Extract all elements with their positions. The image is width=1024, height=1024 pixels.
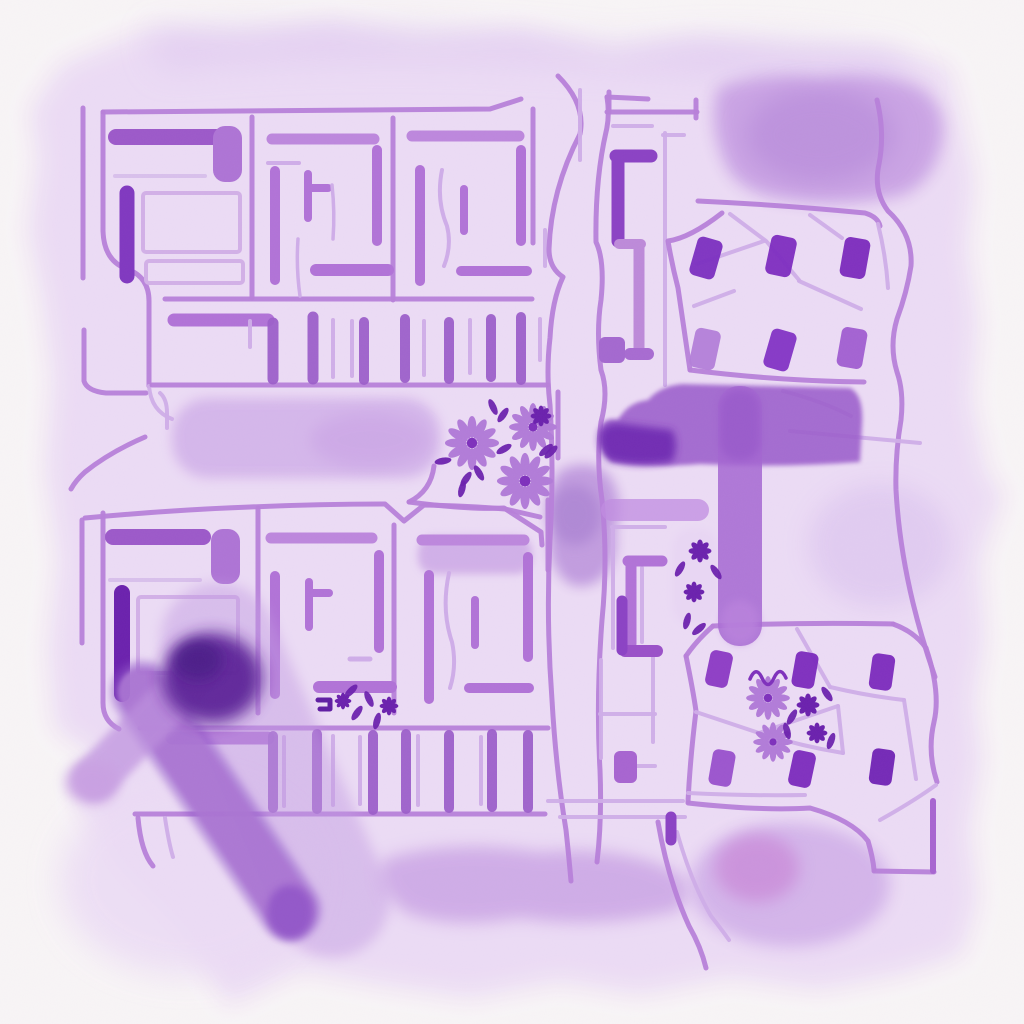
paper-texture-overlay	[0, 0, 1024, 1024]
watercolor-map-painting	[0, 0, 1024, 1024]
map-canvas	[0, 0, 1024, 1024]
